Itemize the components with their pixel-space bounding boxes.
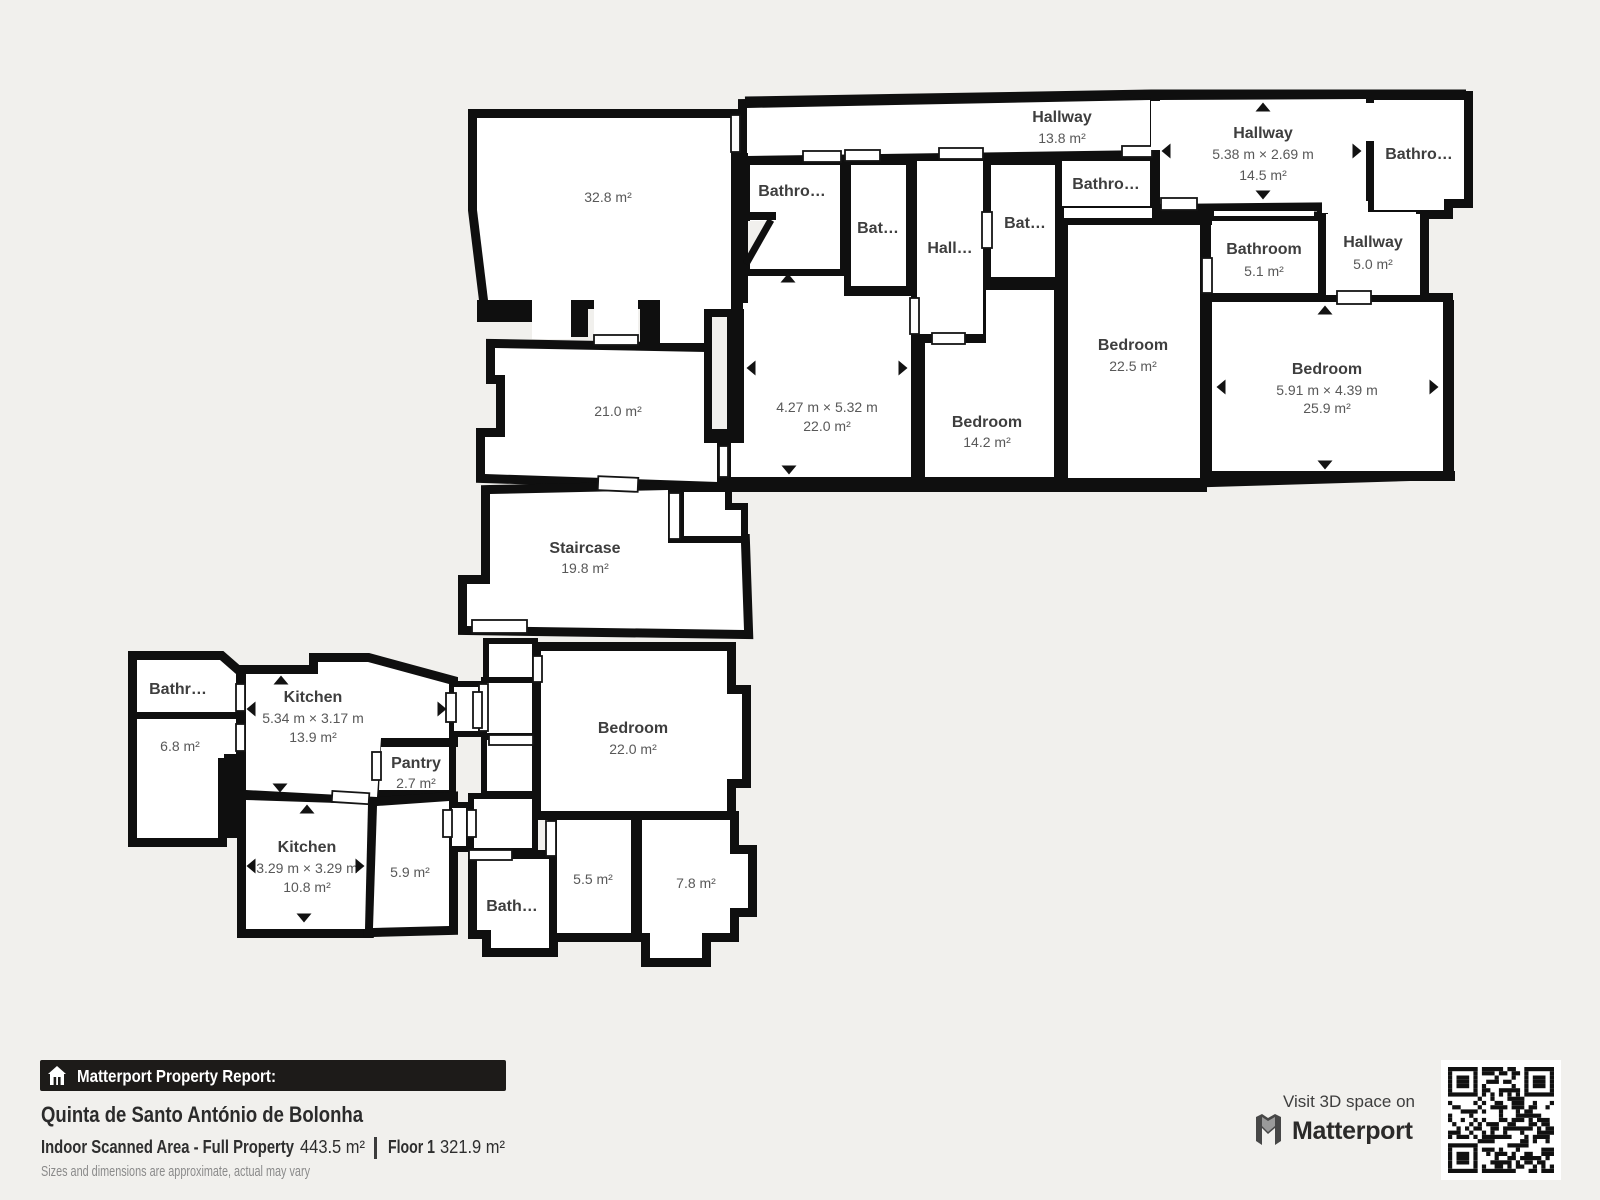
svg-text:14.5 m²: 14.5 m²	[1239, 167, 1287, 183]
svg-text:32.8 m²: 32.8 m²	[584, 189, 632, 205]
svg-text:Pantry: Pantry	[391, 755, 441, 772]
svg-text:13.9 m²: 13.9 m²	[289, 729, 337, 745]
svg-text:Kitchen: Kitchen	[278, 839, 337, 856]
svg-text:Bathro…: Bathro…	[1385, 146, 1453, 163]
svg-text:19.8 m²: 19.8 m²	[561, 560, 609, 576]
svg-text:Hallway: Hallway	[1343, 234, 1403, 251]
svg-text:Bat…: Bat…	[857, 220, 899, 237]
svg-text:Hall…: Hall…	[927, 240, 972, 257]
svg-text:443.5 m²: 443.5 m²	[300, 1137, 365, 1157]
svg-text:Visit 3D space on: Visit 3D space on	[1283, 1092, 1415, 1111]
svg-text:Staircase: Staircase	[549, 540, 620, 557]
svg-text:5.91 m × 4.39 m: 5.91 m × 4.39 m	[1276, 382, 1378, 398]
svg-text:25.9 m²: 25.9 m²	[1303, 400, 1351, 416]
svg-text:5.34 m × 3.17 m: 5.34 m × 3.17 m	[262, 710, 364, 726]
svg-text:Bathr…: Bathr…	[149, 681, 207, 698]
svg-text:22.5 m²: 22.5 m²	[1109, 358, 1157, 374]
svg-text:Hallway: Hallway	[1032, 109, 1092, 126]
svg-text:Bedroom: Bedroom	[598, 720, 668, 737]
svg-text:5.5 m²: 5.5 m²	[573, 871, 613, 887]
svg-text:Matterport: Matterport	[1292, 1117, 1414, 1145]
svg-text:Sizes and dimensions are appro: Sizes and dimensions are approximate, ac…	[41, 1163, 310, 1180]
svg-text:Floor 1: Floor 1	[388, 1137, 435, 1157]
svg-text:22.0 m²: 22.0 m²	[609, 741, 657, 757]
svg-text:Indoor Scanned Area - Full Pro: Indoor Scanned Area - Full Property	[41, 1137, 294, 1157]
svg-text:321.9 m²: 321.9 m²	[440, 1137, 505, 1157]
svg-text:Hallway: Hallway	[1233, 125, 1293, 142]
svg-text:3.29 m × 3.29 m: 3.29 m × 3.29 m	[256, 860, 358, 876]
svg-text:Bedroom: Bedroom	[1098, 337, 1168, 354]
svg-text:4.27 m × 5.32 m: 4.27 m × 5.32 m	[776, 399, 878, 415]
svg-text:5.0 m²: 5.0 m²	[1353, 256, 1393, 272]
svg-text:Bedroom: Bedroom	[952, 414, 1022, 431]
svg-text:13.8 m²: 13.8 m²	[1038, 130, 1086, 146]
svg-text:Quinta de Santo António de Bol: Quinta de Santo António de Bolonha	[41, 1102, 364, 1127]
svg-text:10.8 m²: 10.8 m²	[283, 879, 331, 895]
svg-text:7.8 m²: 7.8 m²	[676, 875, 716, 891]
svg-text:Bath…: Bath…	[486, 898, 538, 915]
svg-text:Bedroom: Bedroom	[1292, 361, 1362, 378]
svg-text:Kitchen: Kitchen	[284, 689, 343, 706]
svg-text:Bat…: Bat…	[1004, 215, 1046, 232]
svg-text:Bathro…: Bathro…	[758, 183, 826, 200]
svg-text:5.1 m²: 5.1 m²	[1244, 263, 1284, 279]
svg-text:Matterport Property Report:: Matterport Property Report:	[77, 1066, 276, 1086]
svg-text:5.9 m²: 5.9 m²	[390, 864, 430, 880]
svg-text:6.8 m²: 6.8 m²	[160, 738, 200, 754]
svg-text:2.7 m²: 2.7 m²	[396, 775, 436, 791]
svg-text:21.0 m²: 21.0 m²	[594, 403, 642, 419]
svg-text:14.2 m²: 14.2 m²	[963, 434, 1011, 450]
svg-text:5.38 m × 2.69 m: 5.38 m × 2.69 m	[1212, 146, 1314, 162]
svg-text:22.0 m²: 22.0 m²	[803, 418, 851, 434]
svg-text:Bathroom: Bathroom	[1226, 241, 1302, 258]
svg-text:Bathro…: Bathro…	[1072, 176, 1140, 193]
